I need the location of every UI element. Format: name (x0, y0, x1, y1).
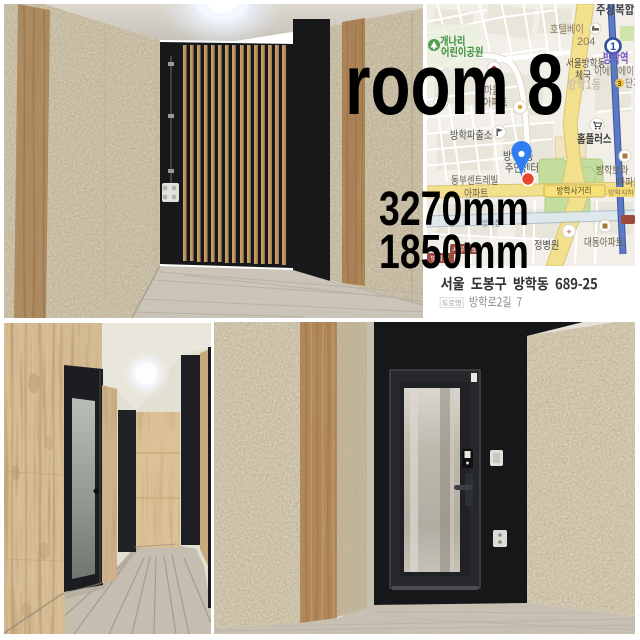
svg-text:204: 204 (577, 36, 595, 48)
svg-text:+: + (566, 227, 571, 237)
svg-text:3: 3 (618, 81, 622, 88)
svg-text:1: 1 (610, 41, 616, 53)
